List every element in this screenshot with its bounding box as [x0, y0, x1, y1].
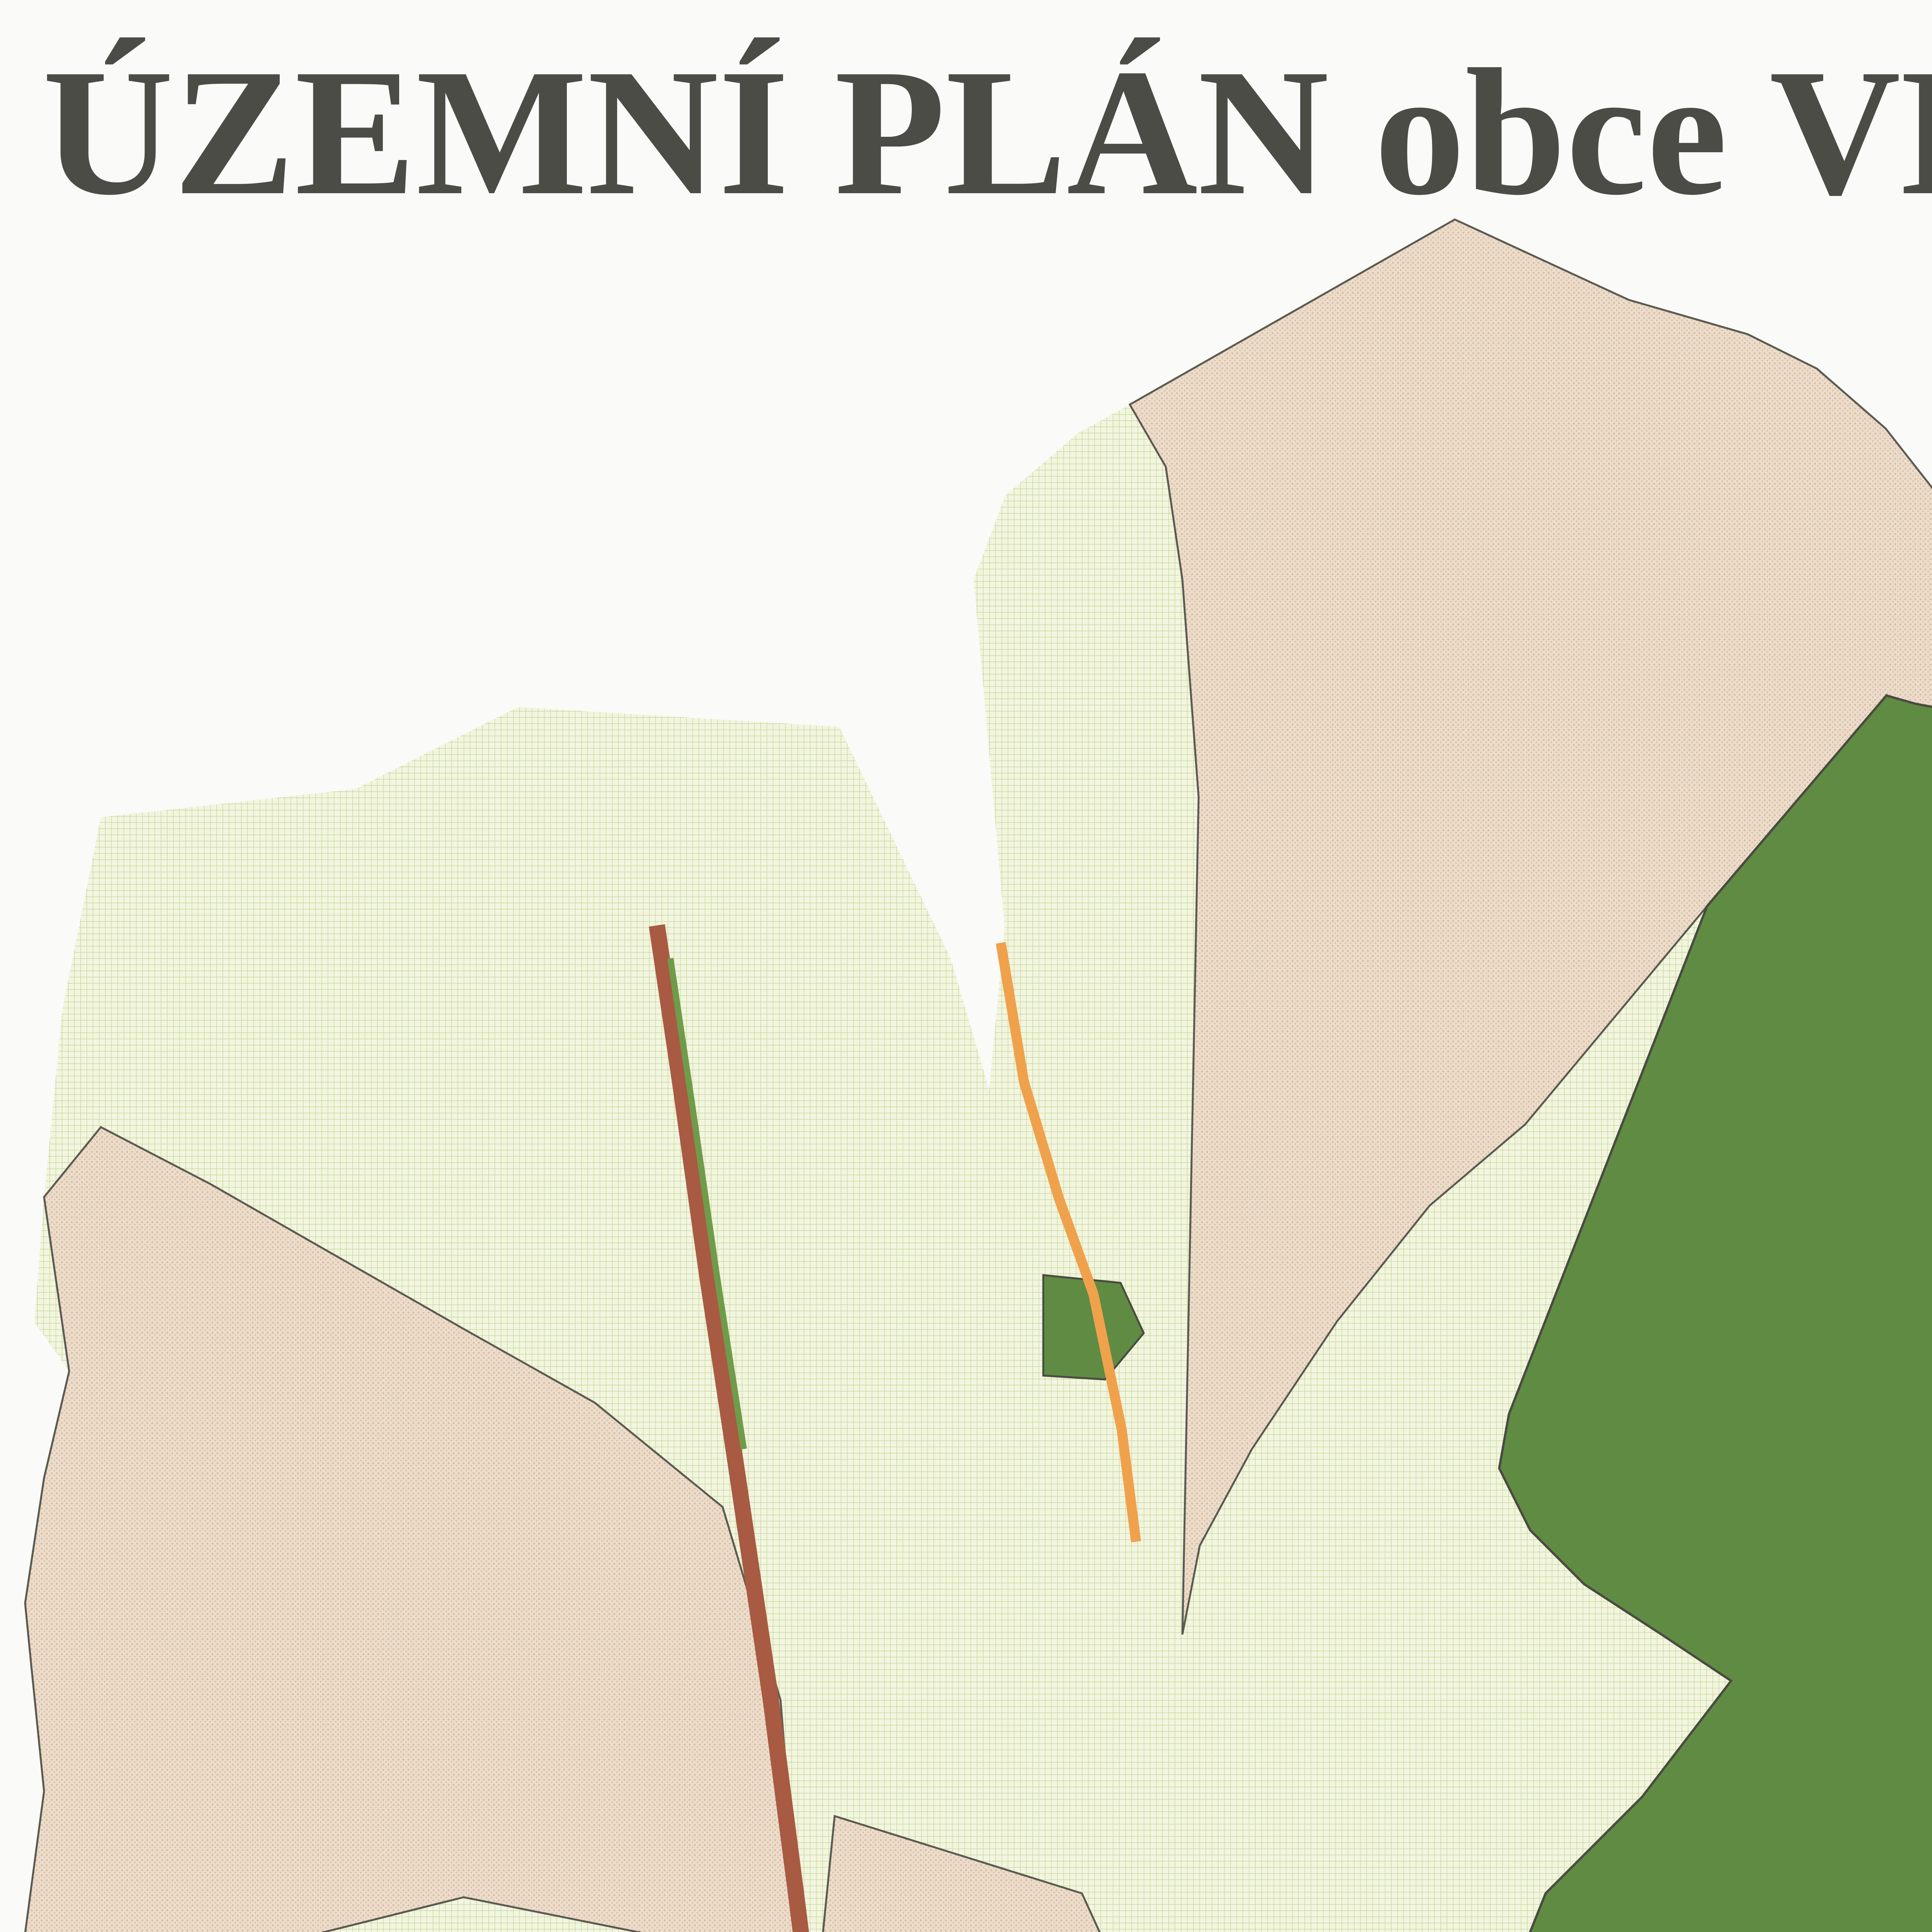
svg-text:ÚZEMNÍ PLÁN obce VLČTEJN - ZMĚ: ÚZEMNÍ PLÁN obce VLČTEJN - ZMĚNA č.2 [43, 31, 1932, 233]
